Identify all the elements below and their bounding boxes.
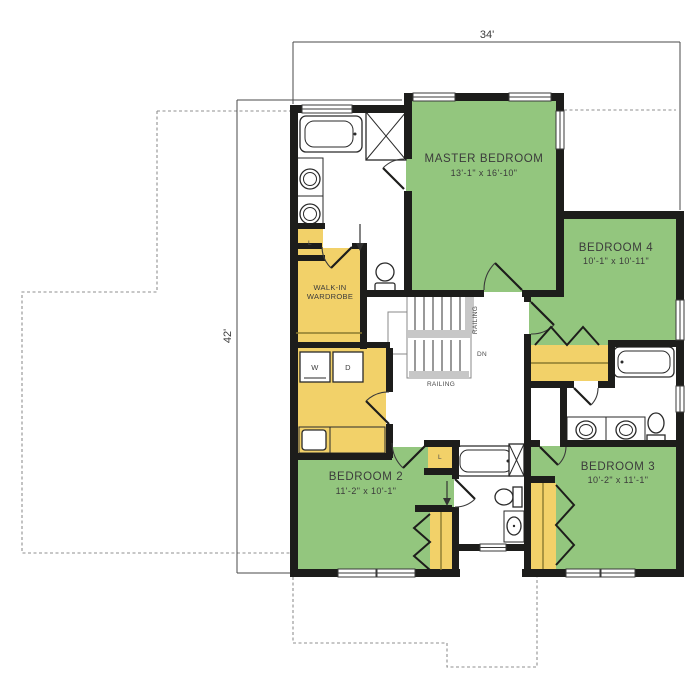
window bbox=[676, 386, 684, 412]
master-bedroom-floor bbox=[406, 100, 558, 292]
laundry-sink bbox=[302, 430, 326, 450]
master-bedroom-label: MASTER BEDROOM bbox=[425, 153, 544, 165]
window bbox=[302, 105, 352, 113]
hall-bath-door bbox=[574, 388, 598, 405]
wall bbox=[404, 191, 412, 297]
wall bbox=[608, 340, 615, 388]
dashed-outline-bottom bbox=[293, 577, 537, 667]
master-bathtub-drain bbox=[354, 133, 357, 136]
window bbox=[601, 569, 635, 577]
stair-railing-bottom-bar bbox=[409, 371, 469, 379]
wall bbox=[556, 211, 684, 219]
wall bbox=[386, 348, 393, 392]
wardrobe-label-line1: WALK-IN bbox=[313, 283, 346, 292]
middle-bath-door bbox=[455, 479, 475, 507]
linen-master-label: L bbox=[308, 240, 312, 247]
linen-hall-label: L bbox=[438, 454, 442, 461]
stair-treads-upper bbox=[415, 297, 460, 331]
stair-landing bbox=[408, 330, 470, 338]
bedroom-4-size: 10'-1" x 10'-11" bbox=[583, 256, 649, 266]
master-bath-door bbox=[383, 159, 404, 189]
bedroom-3-size: 10'-2" x 11'-1" bbox=[588, 475, 649, 485]
window bbox=[556, 111, 564, 149]
window bbox=[413, 93, 455, 101]
wall bbox=[560, 381, 567, 447]
bedroom-4-label: BEDROOM 4 bbox=[579, 242, 653, 254]
railing-right-label: RAILING bbox=[472, 306, 479, 334]
bedroom-3-label: BEDROOM 3 bbox=[581, 461, 655, 473]
staircase bbox=[388, 296, 474, 379]
wall bbox=[290, 453, 392, 460]
stair-landing-side bbox=[388, 312, 407, 354]
wall bbox=[566, 440, 684, 447]
wall bbox=[386, 424, 393, 458]
middle-sink-drain bbox=[513, 525, 515, 527]
wardrobe-label-line2: WARDROBE bbox=[307, 292, 353, 301]
wall bbox=[404, 93, 412, 159]
middle-toilet-bowl bbox=[495, 489, 513, 505]
wall bbox=[415, 505, 452, 512]
wall bbox=[293, 223, 325, 229]
middle-toilet-tank bbox=[513, 487, 522, 507]
hall-bathtub-drain bbox=[621, 361, 624, 364]
wall bbox=[524, 476, 555, 483]
bedroom-2-size: 11'-2" x 10'-1" bbox=[336, 486, 397, 496]
wc-toilet-bowl bbox=[376, 263, 394, 281]
window bbox=[480, 544, 506, 551]
wall bbox=[424, 468, 459, 475]
window bbox=[676, 300, 684, 340]
dryer-label: D bbox=[345, 363, 351, 372]
dashed-outline-left bbox=[22, 111, 290, 553]
dimension-width-label: 34' bbox=[480, 29, 494, 41]
stairs-down-label: DN bbox=[477, 351, 487, 358]
master-bedroom-size: 13'-1" x 16'-10" bbox=[451, 168, 518, 178]
bedroom-2-label: BEDROOM 2 bbox=[329, 471, 403, 483]
wall bbox=[524, 290, 531, 302]
railing-bottom-label: RAILING bbox=[427, 381, 455, 388]
wall bbox=[524, 440, 531, 576]
hall-toilet-bowl bbox=[648, 413, 664, 433]
wall bbox=[524, 334, 531, 447]
wall bbox=[293, 255, 325, 261]
stair-treads-lower bbox=[415, 340, 460, 371]
bedroom-4-floor bbox=[558, 218, 678, 345]
wall bbox=[608, 340, 684, 347]
wall bbox=[452, 507, 459, 576]
window bbox=[377, 569, 415, 577]
window bbox=[566, 569, 600, 577]
window bbox=[338, 569, 376, 577]
floor-plan-canvas: 34' 42' bbox=[0, 0, 700, 700]
dimension-height-label: 42' bbox=[222, 329, 234, 343]
wall bbox=[290, 105, 298, 577]
window bbox=[509, 93, 551, 101]
floor-plan-drawing: 34' 42' bbox=[0, 0, 700, 700]
wall bbox=[362, 290, 484, 297]
wall bbox=[290, 342, 390, 348]
washer-label: W bbox=[311, 363, 319, 372]
